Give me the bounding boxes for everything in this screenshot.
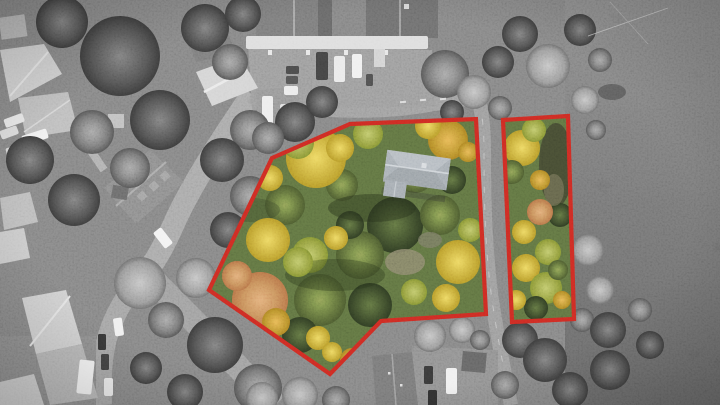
vignette bbox=[0, 0, 720, 405]
aerial-photo-canvas bbox=[0, 0, 720, 405]
aerial-photo bbox=[0, 0, 720, 405]
